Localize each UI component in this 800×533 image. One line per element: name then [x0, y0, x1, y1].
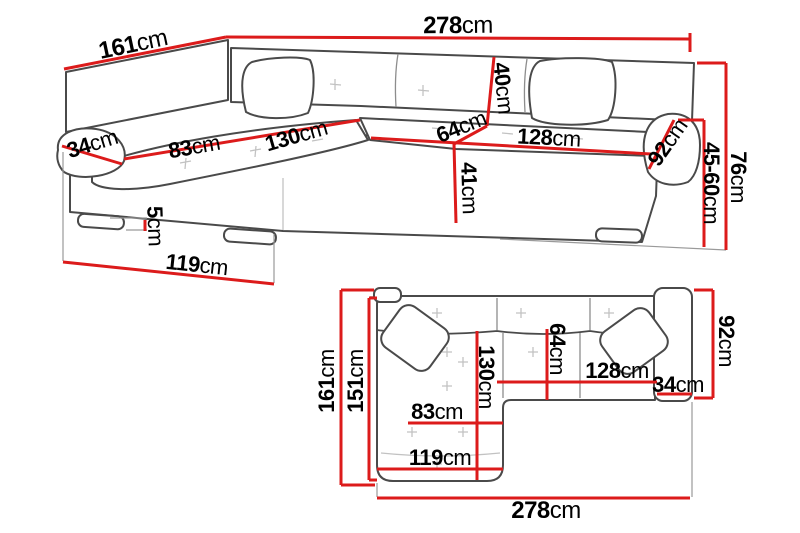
dim-label-plan-chaise-length: 130cm: [474, 345, 499, 409]
dim-line-41: [454, 144, 456, 223]
perspective-leg: [224, 228, 277, 245]
perspective-pillow-right: [529, 58, 615, 125]
dim-label-plan-inner-depth: 151cm: [343, 349, 368, 413]
dim-label-chaise-outer-length: 119cm: [165, 249, 230, 280]
dim-label-plan-seat-depth: 64cm: [545, 323, 570, 375]
diagram-canvas: 278cm 161cm 34cm 83cm 130cm 40cm 64cm 12…: [0, 0, 800, 533]
dim-label-seat-height-range: 45-60cm: [699, 142, 724, 224]
perspective-pillow-left: [242, 58, 313, 119]
dim-label-total-height: 76cm: [726, 151, 751, 203]
dim-label-front-height: 41cm: [456, 162, 483, 215]
dim-label-plan-total-depth: 161cm: [314, 349, 339, 413]
dim-label-leg-height: 5cm: [142, 206, 168, 247]
dim-line-151-plan: [369, 298, 377, 480]
dim-label-seat-width: 128cm: [517, 123, 582, 151]
perspective-leg: [78, 213, 125, 229]
dim-label-plan-right-armrest-width: 34cm: [652, 372, 704, 397]
dim-label-plan-total-width: 278cm: [511, 497, 581, 524]
plan-view: 161cm 151cm 130cm 64cm 128cm 34cm 92cm 8…: [314, 288, 739, 524]
dim-label-plan-chaise-outer-width: 119cm: [409, 445, 471, 470]
dim-label-plan-chaise-cushion-width: 83cm: [411, 399, 463, 424]
sofa-dimension-diagram: 278cm 161cm 34cm 83cm 130cm 40cm 64cm 12…: [0, 0, 800, 533]
plan-corner-element: [374, 288, 401, 302]
dim-label-total-width: 278cm: [423, 12, 493, 40]
dim-label-plan-seat-width: 128cm: [585, 358, 649, 383]
dim-label-plan-right-side-depth: 92cm: [714, 315, 739, 367]
perspective-leg: [596, 228, 642, 243]
perspective-view: 278cm 161cm 34cm 83cm 130cm 40cm 64cm 12…: [57, 12, 751, 284]
